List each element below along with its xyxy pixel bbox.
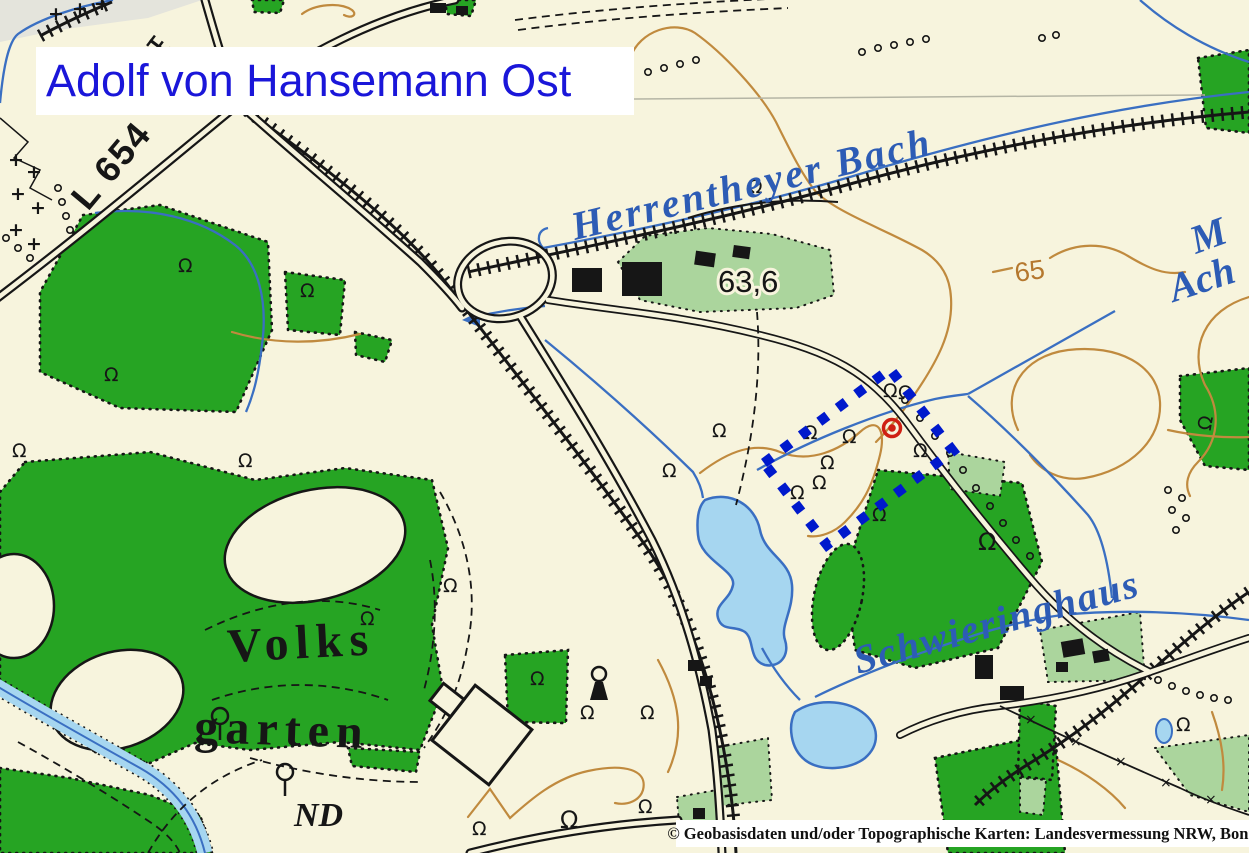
svg-text:×: × (1025, 712, 1037, 728)
svg-text:Ω: Ω (978, 528, 996, 556)
svg-text:Ω: Ω (712, 420, 727, 442)
svg-text:Ω: Ω (443, 575, 458, 597)
attribution-text: © Geobasisdaten und/oder Topographische … (667, 824, 1249, 844)
small-pond (791, 702, 876, 768)
svg-text:×: × (1205, 792, 1217, 808)
svg-text:Ω: Ω (104, 364, 119, 386)
park-name-line1: Volks (226, 612, 377, 673)
page-title: Adolf von Hansemann Ost (36, 55, 571, 107)
svg-text:Ω: Ω (1176, 714, 1191, 736)
park-name-line2: garten (194, 700, 371, 759)
svg-text:Ω: Ω (790, 482, 805, 504)
svg-text:+: + (48, 3, 64, 25)
svg-text:Ω: Ω (560, 806, 578, 834)
map-viewport[interactable]: Ω Ω Ω Ω Ω Ω Ω Ω Ω Ω Ω Ω Ω Ω Ω Ω Ω Ω Ω Ω … (0, 0, 1249, 853)
svg-text:Ω: Ω (530, 668, 545, 690)
map-title-box: Adolf von Hansemann Ost (36, 47, 634, 115)
svg-text:×: × (1070, 734, 1082, 750)
svg-text:Ω: Ω (638, 796, 653, 818)
contour-value-label: 65 (1013, 254, 1047, 288)
svg-text:+: + (8, 219, 24, 241)
svg-text:Ω: Ω (472, 818, 487, 840)
svg-text:Ω: Ω (662, 460, 677, 482)
svg-text:+: + (30, 197, 46, 219)
svg-text:+: + (8, 149, 24, 171)
svg-text:Ω: Ω (913, 440, 928, 462)
topographic-map: Ω Ω Ω Ω Ω Ω Ω Ω Ω Ω Ω Ω Ω Ω Ω Ω Ω Ω Ω Ω … (0, 0, 1249, 853)
svg-text:Ω: Ω (640, 702, 655, 724)
svg-text:+: + (10, 183, 26, 205)
svg-text:+: + (26, 233, 42, 255)
svg-text:+: + (26, 161, 42, 183)
svg-text:Ω: Ω (812, 472, 827, 494)
svg-text:Ω: Ω (820, 452, 835, 474)
svg-text:Ω: Ω (238, 450, 253, 472)
svg-text:Ω: Ω (12, 440, 27, 462)
svg-text:+: + (72, 0, 88, 20)
svg-text:Ω: Ω (580, 702, 595, 724)
svg-text:+: + (94, 0, 110, 15)
svg-text:×: × (1115, 754, 1127, 770)
attribution-bar: © Geobasisdaten und/oder Topographische … (676, 820, 1249, 847)
svg-text:Ω: Ω (300, 280, 315, 302)
svg-text:×: × (1160, 775, 1172, 791)
tiny-pond (1156, 719, 1172, 743)
spot-height-label: 63,6 (718, 264, 778, 299)
svg-text:Ω: Ω (842, 426, 857, 448)
svg-text:Ω: Ω (178, 255, 193, 277)
svg-text:Ω: Ω (883, 380, 898, 402)
nature-monument-label: ND (293, 797, 343, 834)
